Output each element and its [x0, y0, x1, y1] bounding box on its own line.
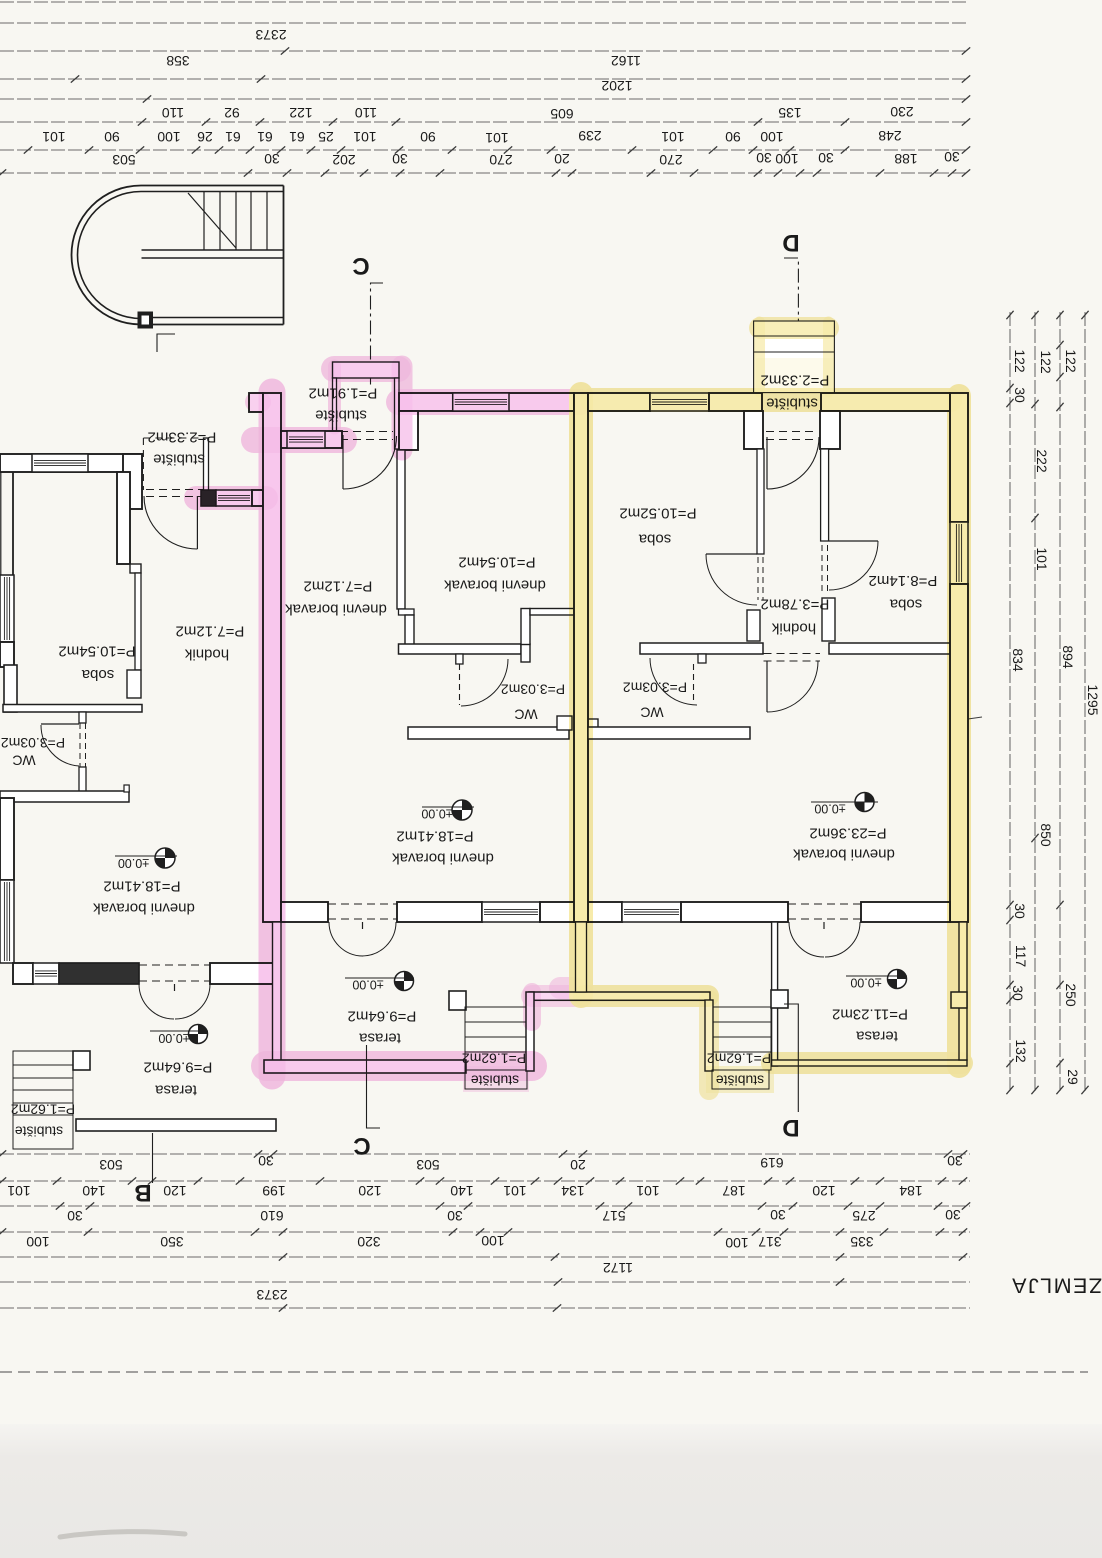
svg-text:soba: soba	[81, 666, 114, 683]
svg-text:135: 135	[778, 105, 802, 121]
svg-text:30: 30	[756, 150, 772, 166]
svg-text:30: 30	[447, 1208, 463, 1224]
svg-text:±0.00: ±0.00	[118, 856, 149, 870]
svg-text:1162: 1162	[611, 53, 641, 69]
svg-text:120: 120	[358, 1183, 382, 1199]
svg-text:±0.00: ±0.00	[352, 978, 383, 992]
svg-text:184: 184	[899, 1183, 923, 1199]
svg-text:26: 26	[197, 129, 213, 145]
svg-text:30: 30	[1012, 903, 1028, 919]
svg-text:503: 503	[416, 1157, 440, 1173]
svg-text:P=9.64m2: P=9.64m2	[144, 1059, 213, 1076]
svg-text:soba: soba	[638, 531, 671, 548]
svg-text:hodnik: hodnik	[771, 620, 816, 637]
svg-text:30: 30	[392, 151, 408, 167]
svg-text:2373: 2373	[256, 1287, 287, 1303]
svg-text:P=10.54m2: P=10.54m2	[58, 643, 135, 660]
svg-text:230: 230	[890, 104, 914, 120]
svg-text:619: 619	[760, 1155, 784, 1171]
svg-text:122: 122	[1012, 349, 1028, 373]
svg-text:30: 30	[944, 149, 960, 165]
svg-text:101: 101	[485, 130, 509, 146]
svg-text:C: C	[353, 1132, 370, 1159]
svg-text:122: 122	[289, 105, 313, 121]
svg-text:stubište: stubište	[153, 451, 205, 468]
svg-text:P=10.54m2: P=10.54m2	[458, 554, 535, 571]
svg-text:PRIZEMLJA: PRIZEMLJA	[1011, 1274, 1102, 1298]
svg-text:dnevni boravak: dnevni boravak	[793, 846, 895, 863]
svg-text:WC: WC	[12, 753, 35, 769]
svg-text:358: 358	[166, 53, 190, 69]
svg-text:dnevni boravak: dnevni boravak	[444, 577, 546, 594]
svg-text:P=3.03m2: P=3.03m2	[501, 682, 565, 698]
svg-text:61: 61	[225, 129, 241, 145]
svg-text:61: 61	[257, 129, 273, 145]
svg-text:±0.00: ±0.00	[814, 802, 845, 816]
svg-text:270: 270	[489, 152, 513, 168]
svg-text:187: 187	[722, 1183, 746, 1199]
svg-text:dnevni boravak: dnevni boravak	[392, 850, 494, 867]
svg-text:92: 92	[224, 105, 240, 121]
svg-text:90: 90	[725, 129, 741, 145]
svg-text:270: 270	[659, 152, 683, 168]
svg-text:132: 132	[1013, 1039, 1029, 1063]
svg-text:202: 202	[332, 152, 356, 168]
svg-text:terasa: terasa	[856, 1028, 898, 1045]
svg-text:100: 100	[157, 129, 181, 145]
svg-text:503: 503	[99, 1157, 123, 1173]
svg-text:120: 120	[163, 1183, 187, 1199]
svg-text:1172: 1172	[603, 1260, 633, 1276]
svg-text:29: 29	[1065, 1069, 1081, 1085]
svg-text:dnevni boravak: dnevni boravak	[285, 601, 387, 618]
svg-text:100: 100	[775, 151, 799, 167]
svg-text:320: 320	[357, 1234, 381, 1250]
svg-text:834: 834	[1010, 648, 1026, 672]
svg-text:1202: 1202	[601, 78, 632, 94]
svg-text:dnevni boravak: dnevni boravak	[93, 900, 195, 917]
svg-text:350: 350	[160, 1234, 184, 1250]
svg-text:503: 503	[112, 152, 136, 168]
svg-text:199: 199	[262, 1183, 286, 1199]
svg-text:P=3.78m2: P=3.78m2	[761, 596, 830, 613]
svg-text:30: 30	[818, 150, 834, 166]
svg-text:±0.00: ±0.00	[850, 976, 881, 990]
svg-text:WC: WC	[640, 705, 663, 721]
svg-text:1295: 1295	[1085, 684, 1101, 715]
svg-text:275: 275	[852, 1208, 876, 1224]
svg-text:P=1.91m2: P=1.91m2	[309, 385, 378, 402]
svg-text:100: 100	[760, 129, 784, 145]
svg-text:122: 122	[1063, 349, 1079, 373]
svg-text:D: D	[782, 229, 799, 256]
svg-text:100: 100	[725, 1235, 749, 1251]
svg-text:P=9.64m2: P=9.64m2	[348, 1008, 417, 1025]
svg-text:stubište: stubište	[15, 1124, 63, 1140]
svg-text:P=18.41m2: P=18.41m2	[103, 878, 180, 895]
svg-text:122: 122	[1038, 350, 1054, 374]
svg-text:terasa: terasa	[359, 1030, 401, 1047]
svg-text:terasa: terasa	[155, 1082, 197, 1099]
svg-text:605: 605	[550, 106, 574, 122]
svg-text:P=1.62m2: P=1.62m2	[11, 1102, 75, 1118]
svg-text:soba: soba	[889, 596, 922, 613]
svg-text:250: 250	[1063, 983, 1079, 1007]
svg-text:90: 90	[420, 129, 436, 145]
svg-text:hodnik: hodnik	[184, 646, 229, 663]
svg-text:±0.00: ±0.00	[158, 1031, 189, 1045]
svg-text:317: 317	[758, 1234, 782, 1250]
svg-text:P=2.33m2: P=2.33m2	[148, 429, 217, 446]
svg-text:101: 101	[1034, 547, 1050, 571]
svg-text:P=11.23m2: P=11.23m2	[832, 1006, 908, 1023]
svg-text:P=7.12m2: P=7.12m2	[304, 578, 373, 595]
svg-text:61: 61	[289, 129, 305, 145]
svg-text:117: 117	[1013, 945, 1029, 968]
svg-text:WC: WC	[514, 707, 537, 723]
svg-text:101: 101	[661, 129, 685, 145]
svg-text:30: 30	[1012, 387, 1028, 403]
svg-text:110: 110	[355, 105, 378, 121]
svg-text:P=8.14m2: P=8.14m2	[869, 572, 938, 589]
svg-text:±0.00: ±0.00	[421, 807, 452, 821]
svg-text:239: 239	[578, 128, 602, 144]
svg-text:517: 517	[602, 1208, 626, 1224]
svg-text:C: C	[352, 252, 369, 279]
svg-text:B: B	[134, 1179, 151, 1206]
svg-text:134: 134	[561, 1183, 585, 1199]
svg-text:30: 30	[770, 1207, 786, 1223]
svg-text:101: 101	[353, 129, 377, 145]
svg-text:20: 20	[554, 151, 570, 167]
svg-text:850: 850	[1038, 823, 1054, 847]
svg-text:101: 101	[42, 129, 66, 145]
svg-text:2373: 2373	[255, 27, 286, 43]
svg-text:D: D	[782, 1114, 799, 1141]
svg-text:30: 30	[945, 1207, 961, 1223]
svg-text:101: 101	[503, 1183, 527, 1199]
svg-text:248: 248	[878, 128, 902, 144]
svg-text:894: 894	[1060, 645, 1076, 669]
svg-text:30: 30	[67, 1208, 83, 1224]
svg-text:101: 101	[636, 1183, 660, 1199]
svg-text:20: 20	[570, 1157, 586, 1173]
svg-text:30: 30	[1010, 985, 1026, 1001]
svg-text:188: 188	[894, 151, 918, 167]
svg-text:140: 140	[82, 1183, 106, 1199]
svg-text:P=18.41m2: P=18.41m2	[396, 828, 473, 845]
svg-text:222: 222	[1034, 449, 1050, 473]
svg-text:335: 335	[850, 1234, 874, 1250]
svg-text:P=23.36m2: P=23.36m2	[809, 825, 886, 842]
svg-text:100: 100	[481, 1233, 505, 1249]
svg-text:P=10.52m2: P=10.52m2	[619, 505, 696, 522]
svg-text:101: 101	[7, 1183, 31, 1199]
svg-text:610: 610	[260, 1208, 284, 1224]
svg-text:P=3.03m2: P=3.03m2	[1, 735, 65, 751]
svg-text:P=3.03m2: P=3.03m2	[623, 680, 687, 696]
svg-text:110: 110	[162, 105, 185, 121]
svg-text:140: 140	[450, 1183, 474, 1199]
svg-text:90: 90	[104, 129, 120, 145]
svg-text:100: 100	[26, 1234, 50, 1250]
svg-text:P=7.12m2: P=7.12m2	[176, 623, 245, 640]
svg-text:120: 120	[812, 1183, 836, 1199]
svg-text:25: 25	[318, 129, 334, 145]
